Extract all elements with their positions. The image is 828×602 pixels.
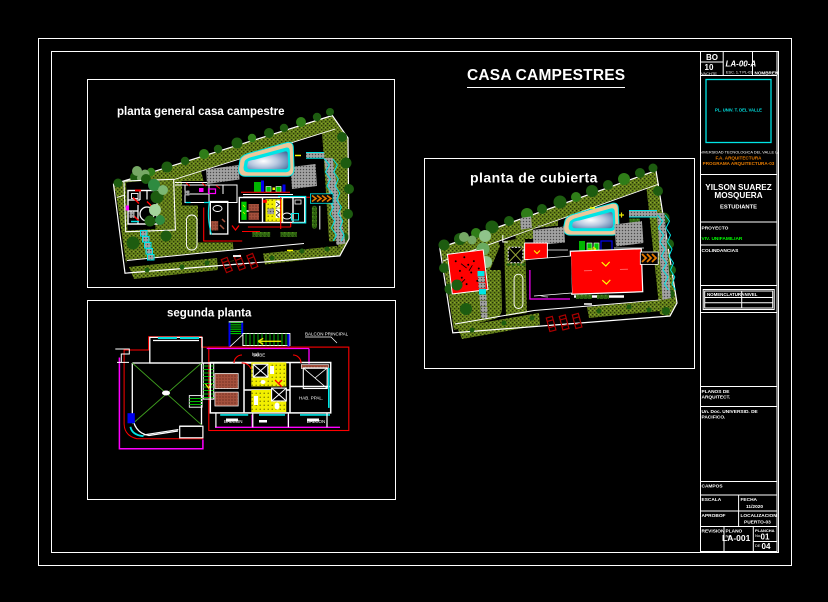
svg-text:04: 04 — [762, 542, 771, 551]
svg-text:PROYECTO: PROYECTO — [702, 226, 729, 232]
svg-text:F.A. ARQUITECTURA: F.A. ARQUITECTURA — [715, 156, 762, 161]
svg-text:SUBE: SUBE — [253, 353, 265, 358]
svg-text:ESC. 1.T PL-03: ESC. 1.T PL-03 — [726, 71, 753, 75]
svg-text:Un. Doc. UNIVERSID. DE: Un. Doc. UNIVERSID. DE — [702, 409, 759, 415]
svg-text:VIV. UNIFAMILIAR: VIV. UNIFAMILIAR — [702, 236, 743, 242]
svg-text:FECHA: FECHA — [741, 497, 758, 503]
svg-text:BALCON PRINCIPAL: BALCON PRINCIPAL — [305, 332, 349, 337]
svg-text:ESCALA: ESCALA — [702, 497, 722, 503]
svg-text:CAMPOS: CAMPOS — [702, 484, 724, 490]
svg-text:PLANOS DE: PLANOS DE — [702, 389, 731, 395]
svg-text:PROGRAMA ARQUITECTURA-03: PROGRAMA ARQUITECTURA-03 — [703, 161, 775, 166]
svg-text:ARQUITECT.: ARQUITECT. — [702, 395, 731, 401]
svg-text:PACIFICO.: PACIFICO. — [702, 415, 726, 421]
svg-text:LA-00-A: LA-00-A — [726, 60, 757, 69]
svg-text:planta de cubierta: planta de cubierta — [470, 170, 598, 186]
svg-text:LA-001: LA-001 — [722, 533, 751, 543]
svg-text:NOMBREN: NOMBREN — [755, 71, 779, 76]
svg-text:BO: BO — [706, 53, 718, 62]
svg-text:APROBOF: APROBOF — [702, 513, 726, 519]
svg-text:UNIVERSIDAD TECNOLOGICA DEL VA: UNIVERSIDAD TECNOLOGICA DEL VALLE LA — [700, 150, 778, 155]
svg-text:segunda planta: segunda planta — [167, 308, 252, 320]
svg-text:planta general casa campestre: planta general casa campestre — [117, 106, 284, 118]
svg-text:MOSQUERA: MOSQUERA — [714, 191, 762, 200]
svg-text:LOCALIZACION: LOCALIZACION — [741, 513, 778, 519]
svg-text:01: 01 — [761, 533, 770, 542]
svg-text:DE: DE — [755, 543, 761, 548]
svg-text:HAB. PPAL.: HAB. PPAL. — [299, 396, 323, 401]
svg-text:11/2020: 11/2020 — [746, 504, 763, 510]
svg-text:PUERTO-03: PUERTO-03 — [744, 520, 771, 526]
svg-text:NIVEL: NIVEL — [745, 292, 758, 297]
svg-text:VACHTE: VACHTE — [701, 71, 717, 76]
svg-text:ESTUDIANTE: ESTUDIANTE — [720, 205, 757, 211]
svg-text:NOMENCLATURA: NOMENCLATURA — [707, 292, 745, 297]
svg-text:COLINDANCIAS: COLINDANCIAS — [702, 248, 740, 254]
svg-text:PL. UNIV. T. DEL VALLE: PL. UNIV. T. DEL VALLE — [715, 108, 762, 113]
